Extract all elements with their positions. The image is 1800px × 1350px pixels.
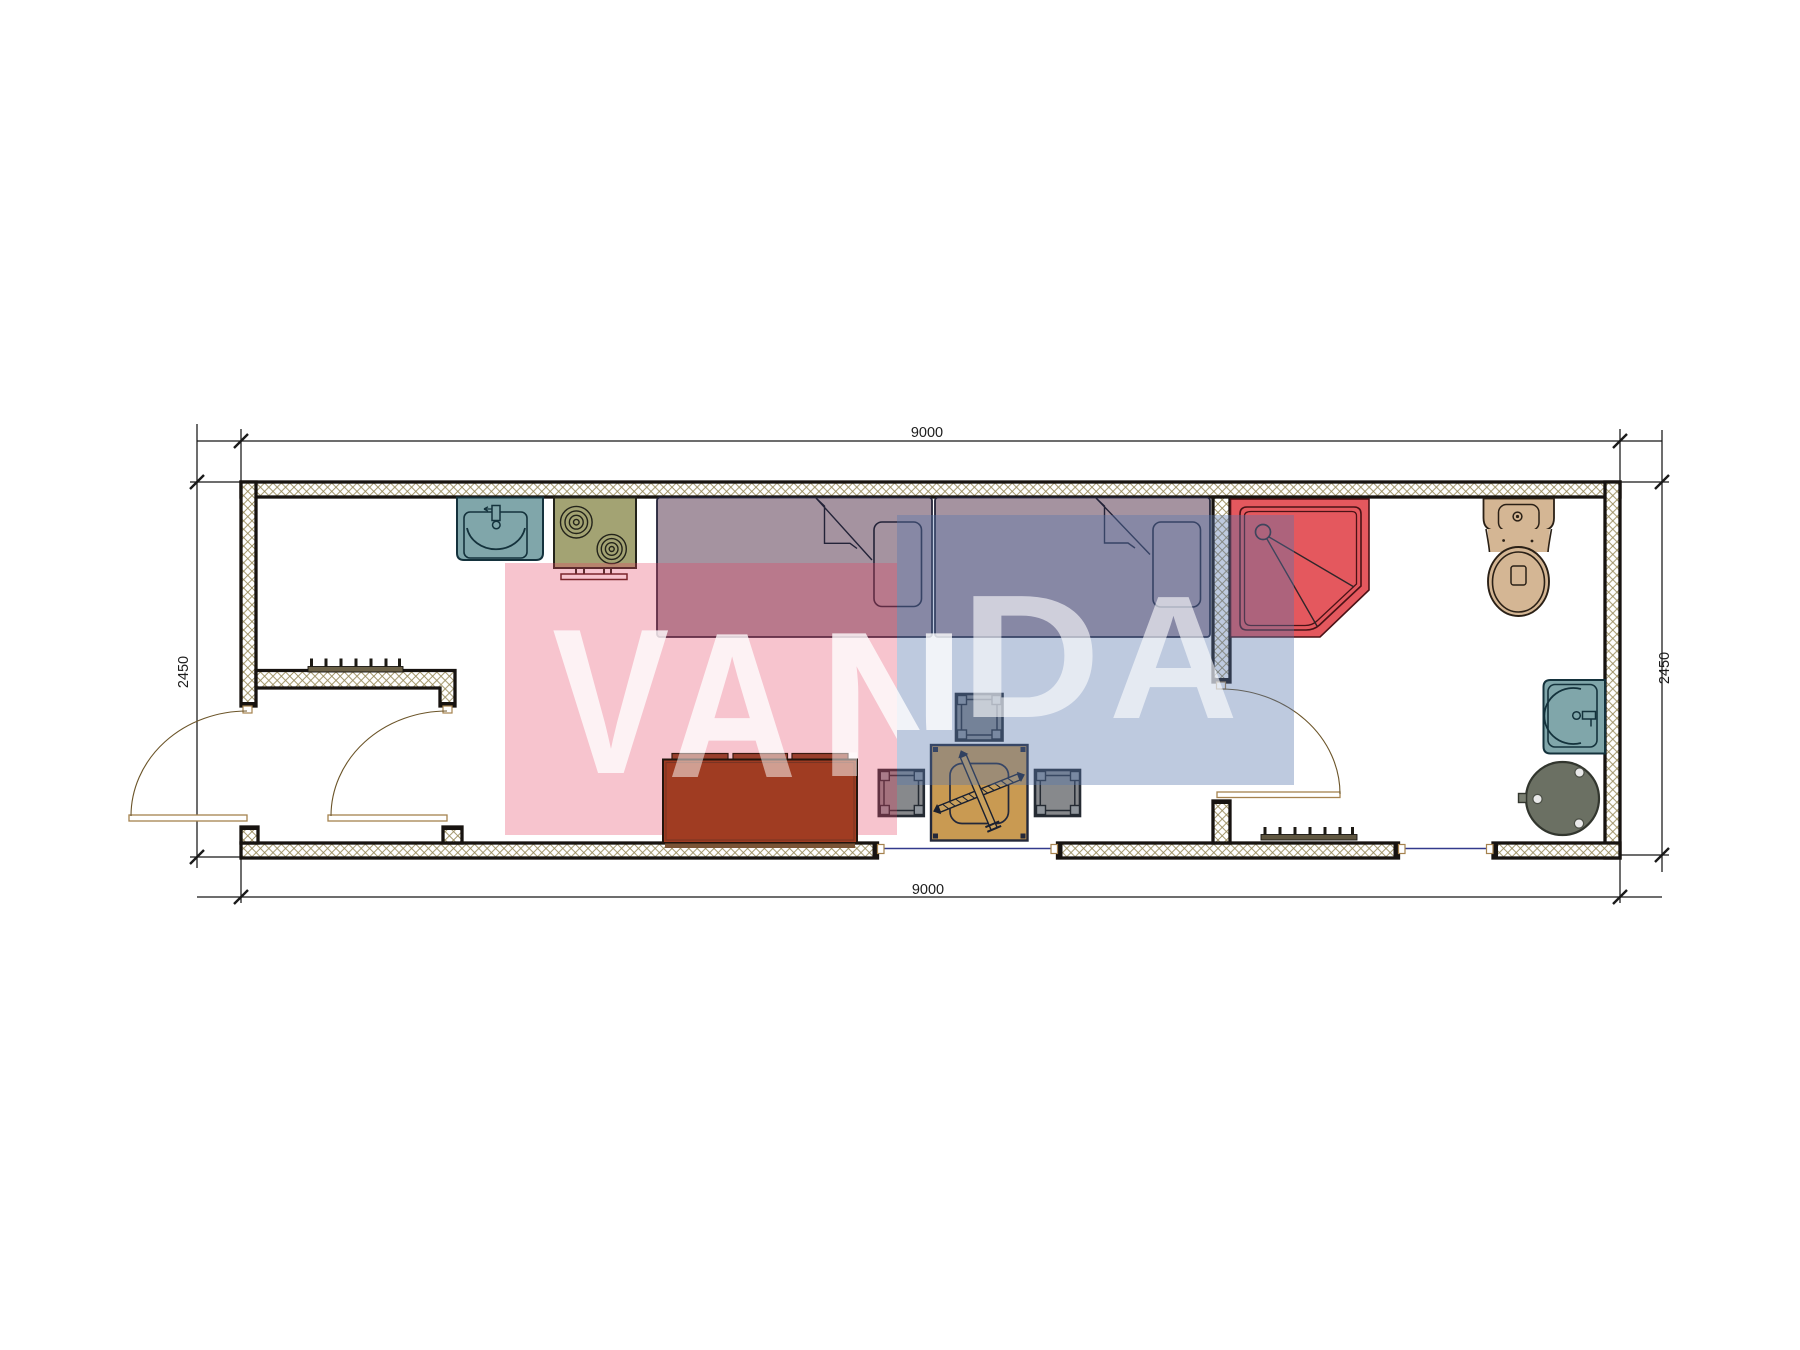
svg-text:9000: 9000: [911, 425, 943, 441]
svg-text:A: A: [1109, 558, 1238, 755]
svg-text:V: V: [552, 585, 669, 817]
svg-text:9000: 9000: [912, 882, 944, 898]
svg-text:D: D: [960, 559, 1100, 755]
svg-text:2450: 2450: [176, 656, 192, 688]
svg-text:2450: 2450: [1657, 652, 1673, 684]
